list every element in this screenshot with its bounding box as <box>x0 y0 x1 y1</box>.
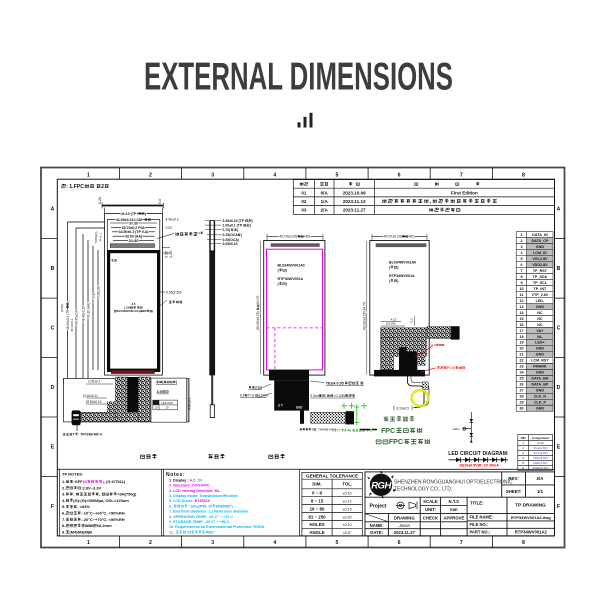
svg-text:PIN: PIN <box>521 436 526 440</box>
svg-text:REV:: REV: <box>508 476 519 481</box>
svg-text:5.00(2A): 5.00(2A) <box>96 286 100 298</box>
svg-text:5.08(2A): 5.08(2A) <box>94 231 98 243</box>
svg-text:16 ~ 80: 16 ~ 80 <box>310 506 325 511</box>
svg-text:PCM: PCM <box>447 366 455 370</box>
svg-text:GND: GND <box>536 305 545 309</box>
svg-text:mm: mm <box>450 507 458 512</box>
svg-text:VCC(2.8V): VCC(2.8V) <box>533 451 548 455</box>
svg-text:RGH: RGH <box>371 480 392 491</box>
svg-text:Project: Project <box>370 504 387 510</box>
svg-text:P=1.1: P=1.1 <box>99 233 103 241</box>
svg-text:19: 19 <box>519 341 523 345</box>
svg-text:01: 01 <box>301 190 307 195</box>
svg-text:19(20±0.5V)R: 2V 20mA: 19(20±0.5V)R: 2V 20mA <box>459 464 499 468</box>
svg-text:11: 11 <box>520 293 524 297</box>
svg-text:6.: 6. <box>169 504 172 508</box>
svg-text:COG: COG <box>431 343 437 347</box>
svg-text:2.05±0.15: 2.05±0.15 <box>223 242 238 246</box>
svg-text:02: 02 <box>301 199 307 204</box>
svg-text:TOL.: TOL. <box>342 482 352 487</box>
svg-text:F: F <box>51 504 54 510</box>
svg-text:10. Requirements on Environmen: 10. Requirements on Environmental Protec… <box>169 525 265 529</box>
svg-text:SHEET:: SHEET: <box>506 489 522 494</box>
svg-text::-10°C~+60°C, <90%RH: :-10°C~+60°C, <90%RH <box>81 511 125 516</box>
svg-text:DIM.: DIM. <box>312 482 321 487</box>
svg-text:45.10±0.3: 45.10±0.3 <box>70 318 74 332</box>
svg-text:RTP34WV001A2.dwg: RTP34WV001A2.dwg <box>511 515 551 520</box>
svg-text:TP DRAWING: TP DRAWING <box>515 502 546 508</box>
svg-text:,: , <box>99 492 100 497</box>
svg-text:TITLE:: TITLE: <box>470 501 484 506</box>
svg-text:N.T.S: N.T.S <box>449 499 460 504</box>
svg-text:(DR): (DR) <box>255 386 262 390</box>
svg-text:±0.2mm: ±0.2mm <box>97 523 112 528</box>
svg-text:T+G: T+G <box>248 394 255 398</box>
svg-text:10: 10 <box>519 287 523 291</box>
svg-text:8.B: 8.B <box>112 259 118 263</box>
svg-text:(83.80±0.25): (83.80±0.25) <box>256 311 260 330</box>
svg-text:UNIT:: UNIT: <box>425 507 437 512</box>
svg-text:9. STORAGE TEMP: -30 C° ~ +80: 9. STORAGE TEMP: -30 C° ~ +80 C <box>169 520 230 524</box>
svg-text:2: 2 <box>520 239 522 243</box>
svg-text:, (G:GT911): , (G:GT911) <box>104 479 126 484</box>
svg-text:FMARK: FMARK <box>533 365 547 369</box>
svg-text:26: 26 <box>519 383 523 387</box>
svg-text:E: E <box>557 445 561 451</box>
svg-text:A 4o: A 4o <box>344 429 351 433</box>
svg-text:GND: GND <box>536 347 545 351</box>
svg-text:9: 9 <box>520 281 522 285</box>
svg-text:16: 16 <box>519 323 523 327</box>
svg-text:D: D <box>51 385 55 391</box>
svg-text:(15.80): (15.80) <box>386 322 396 326</box>
svg-text:9.: 9. <box>62 529 65 534</box>
svg-text:: >84%: : >84% <box>77 504 90 509</box>
svg-text:4.15: 4.15 <box>391 317 397 321</box>
svg-text:1: 1 <box>87 173 90 179</box>
svg-text:Assignment: Assignment <box>532 436 549 440</box>
svg-text:GND: GND <box>536 389 545 393</box>
svg-text:(83.80±0.25) 84.70: (83.80±0.25) 84.70 <box>362 302 366 330</box>
svg-text:8. OPERATING TEMP: -20 C° ~ +7: 8. OPERATING TEMP: -20 C° ~ +70 C <box>169 515 233 519</box>
svg-text:FPC: FPC <box>389 439 403 446</box>
svg-text:15.50±0.15: 15.50±0.15 <box>86 400 102 404</box>
svg-text::: : <box>73 492 74 497</box>
svg-text:TECHNOLOGY CO., LTD.: TECHNOLOGY CO., LTD. <box>394 486 452 492</box>
svg-text:DATA_BP: DATA_BP <box>531 383 548 387</box>
svg-text:B: B <box>557 266 561 272</box>
svg-text:NAME:: NAME: <box>370 523 385 528</box>
svg-text:FPC: FPC <box>381 428 395 435</box>
svg-text:TP_SDA: TP_SDA <box>533 275 548 279</box>
svg-text:2: 2 <box>149 540 152 546</box>
svg-text:GENERAL TOLERANCE: GENERAL TOLERANCE <box>306 474 358 479</box>
svg-text::GFF: :GFF <box>73 479 83 484</box>
svg-text:2023.11.27: 2023.11.27 <box>343 208 366 213</box>
svg-text:1/A: 1/A <box>321 199 329 204</box>
svg-text:2/A: 2/A <box>537 476 545 481</box>
svg-text:LED(2.8V): LED(2.8V) <box>533 461 547 465</box>
svg-text:7.: 7. <box>62 517 65 522</box>
svg-text:: 1.FPC: : 1.FPC <box>66 184 84 190</box>
svg-text:DRAWING: DRAWING <box>394 515 415 520</box>
svg-text:11.: 11. <box>169 530 174 534</box>
svg-text:LED+: LED+ <box>453 427 461 431</box>
svg-text:HOLES: HOLES <box>309 522 324 527</box>
svg-text:8u": 8u" <box>209 530 215 534</box>
svg-text:BL034WV001A0 (: BL034WV001A0 ( <box>117 309 141 313</box>
svg-text:10: 10 <box>154 406 158 410</box>
svg-text:): ) <box>237 228 238 232</box>
svg-text:BL034WV001A0: BL034WV001A0 <box>389 261 416 265</box>
svg-text::2.8V~3.3V: :2.8V~3.3V <box>81 485 101 490</box>
svg-text:LED+: LED+ <box>535 341 545 345</box>
svg-text:LED CIRCUIT DIAGRAM:: LED CIRCUIT DIAGRAM: <box>448 451 509 457</box>
svg-text:VA+: VA+ <box>536 329 543 333</box>
svg-text:A: A <box>557 207 561 213</box>
svg-text:40.70±0.20(: 40.70±0.20( <box>279 235 298 239</box>
svg-text:44.45±0.2: 44.45±0.2 <box>74 311 78 325</box>
svg-text:VTP_2.8V: VTP_2.8V <box>531 293 548 297</box>
svg-text:5: 5 <box>520 257 522 261</box>
svg-text:30: 30 <box>519 407 523 411</box>
svg-text:±0.5°: ±0.5° <box>343 531 352 535</box>
svg-text:D: D <box>557 385 561 391</box>
svg-text:1.20: 1.20 <box>169 251 173 258</box>
svg-text:CLK_N: CLK_N <box>534 395 547 399</box>
svg-text:NC: NC <box>537 311 543 315</box>
svg-text:3.: 3. <box>62 492 65 497</box>
svg-text:BL034WV001A0: BL034WV001A0 <box>278 264 305 268</box>
svg-text:20: 20 <box>519 347 523 351</box>
svg-text:8: 8 <box>522 173 525 179</box>
svg-text:NC: NC <box>537 323 543 327</box>
svg-text:6.: 6. <box>62 511 65 516</box>
svg-text:C: C <box>51 326 55 332</box>
svg-text:VGL2.8V: VGL2.8V <box>532 257 548 261</box>
svg-text:±0.15: ±0.15 <box>343 507 352 511</box>
svg-text:GND: GND <box>536 371 545 375</box>
svg-text:0.02: 0.02 <box>166 226 173 230</box>
svg-text:2023.11.27: 2023.11.27 <box>394 530 416 535</box>
svg-text:0.1: 0.1 <box>196 231 201 235</box>
svg-text:17: 17 <box>519 329 523 333</box>
svg-text:1: 1 <box>520 233 522 237</box>
svg-text:HDI10±8: HDI10±8 <box>161 401 172 405</box>
svg-text:±0.20: ±0.20 <box>343 515 352 519</box>
svg-text:31.30: 31.30 <box>128 238 139 243</box>
svg-text:GND: GND <box>536 407 545 411</box>
svg-text:1.00±0.1 (TP: 1.00±0.1 (TP <box>223 224 243 228</box>
svg-text:): ) <box>250 224 251 228</box>
svg-text:VDD2.8V: VDD2.8V <box>532 263 548 267</box>
svg-text:DATE:: DATE: <box>370 530 383 535</box>
svg-text:4: 4 <box>273 173 276 179</box>
svg-text:25: 25 <box>519 377 523 381</box>
svg-text:PART NO.:: PART NO.: <box>470 530 491 535</box>
svg-text:): ) <box>252 219 253 223</box>
svg-text:SHENZHEN RONGGUANGHUI OPTOELEC: SHENZHEN RONGGUANGHUI OPTOELECTRONIC <box>394 479 513 485</box>
svg-text:RTP34WV001A: RTP34WV001A <box>389 274 415 278</box>
svg-text:1.: 1. <box>62 479 65 484</box>
svg-text:SCALE: SCALE <box>423 499 438 504</box>
svg-text:LCM_RST: LCM_RST <box>531 359 549 363</box>
svg-text:(3.40±0.2): (3.40±0.2) <box>83 394 98 398</box>
svg-text:=0.1MM: =0.1MM <box>333 394 346 398</box>
svg-text:2: 2 <box>101 184 104 190</box>
svg-text:3.5: 3.5 <box>131 302 135 306</box>
svg-text:TP NOTES:: TP NOTES: <box>62 472 83 477</box>
svg-text:84.70: 84.70 <box>256 296 260 304</box>
svg-text:13: 13 <box>519 305 523 309</box>
svg-text:3: 3 <box>211 540 214 546</box>
svg-text:2: 2 <box>149 173 152 179</box>
svg-text:18: 18 <box>519 335 523 339</box>
svg-text:EXTERNAL DIMENSIONS: EXTERNAL DIMENSIONS <box>144 56 453 99</box>
svg-text:4. Display mode: Transmissive/: 4. Display mode: Transmissive/Positive <box>169 494 238 498</box>
svg-text:8.90±0.3: 8.90±0.3 <box>188 397 192 410</box>
svg-text:2023.11.13: 2023.11.13 <box>343 199 366 204</box>
svg-text:2023.10.09: 2023.10.09 <box>343 190 366 195</box>
svg-text:7: 7 <box>460 173 463 179</box>
svg-text:0.25(OCA: 0.25(OCA <box>223 233 239 237</box>
svg-text:23: 23 <box>519 365 523 369</box>
svg-text:5.: 5. <box>62 504 65 509</box>
svg-text:): ) <box>176 380 177 384</box>
svg-text:HD): HD) <box>409 235 415 239</box>
svg-text:28: 28 <box>519 395 523 399</box>
svg-text:RTP34WV001A: RTP34WV001A <box>278 277 304 281</box>
svg-text:6: 6 <box>520 263 522 267</box>
svg-text:3.30±0.15 (TP: 3.30±0.15 (TP <box>223 219 245 223</box>
svg-text:03: 03 <box>301 208 307 213</box>
svg-text:4.: 4. <box>62 498 65 503</box>
svg-text:): ) <box>145 212 146 216</box>
svg-text:6: 6 <box>398 173 401 179</box>
svg-text:(0.80): (0.80) <box>60 304 64 312</box>
svg-text:First Edition: First Edition <box>451 190 478 195</box>
svg-text:2.05±0.1: 2.05±0.1 <box>88 380 101 384</box>
svg-text:GND: GND <box>537 441 545 445</box>
svg-text:Notes:: Notes: <box>166 472 185 478</box>
svg-text:DATA_IN: DATA_IN <box>532 233 548 237</box>
svg-text:1/1: 1/1 <box>537 489 544 494</box>
svg-text:2. Structure: COG+FPC: 2. Structure: COG+FPC <box>169 484 210 488</box>
svg-text:7: 7 <box>460 540 463 546</box>
svg-text:TP_RST: TP_RST <box>533 269 548 273</box>
svg-text:(G: (G <box>83 479 87 484</box>
svg-text:F: F <box>557 504 560 510</box>
svg-text:8: 8 <box>520 275 522 279</box>
svg-text:DATA_BN: DATA_BN <box>531 377 548 381</box>
svg-text:8 ~ 15: 8 ~ 15 <box>311 499 324 504</box>
svg-text:7: 7 <box>520 269 522 273</box>
svg-text:): ) <box>152 309 153 313</box>
svg-text:41.40±0.15: 41.40±0.15 <box>81 306 85 322</box>
svg-text:5: 5 <box>336 173 339 179</box>
svg-text:TP_INT: TP_INT <box>534 287 547 291</box>
svg-text:(G):(G)>500Mpa, ODL>125um: (G):(G)>500Mpa, ODL>125um <box>73 498 129 503</box>
svg-text:GO!: GO! <box>296 406 302 410</box>
svg-text:1: 1 <box>87 540 90 546</box>
svg-text:±0.10: ±0.10 <box>343 492 352 496</box>
svg-text:LCM_ID: LCM_ID <box>533 251 547 255</box>
svg-text:CLK_P: CLK_P <box>534 401 547 405</box>
svg-text:85/85/85°): 85/85/85°) <box>216 504 234 508</box>
svg-text:3.96: 3.96 <box>164 251 168 258</box>
svg-text:8.: 8. <box>62 523 65 528</box>
svg-text:(M4)M3(M)B: (M4)M3(M)B <box>69 529 92 534</box>
svg-text:41.10 (TP: 41.10 (TP <box>121 212 137 216</box>
svg-text:A: A <box>51 207 55 213</box>
svg-text:21: 21 <box>519 353 523 357</box>
svg-text:8.6: 8.6 <box>410 318 414 323</box>
svg-text:P=1.1: P=1.1 <box>91 293 95 302</box>
svg-text:VGL(2.8V): VGL(2.8V) <box>533 446 547 450</box>
svg-text:RTP34WV001A2: RTP34WV001A2 <box>515 530 548 535</box>
svg-text:5. LCD Driver: NT35310: 5. LCD Driver: NT35310 <box>169 499 210 503</box>
svg-text:±0.10: ±0.10 <box>343 523 352 527</box>
svg-text:4.90±0.2: 4.90±0.2 <box>166 218 179 222</box>
svg-text:NC: NC <box>537 317 543 321</box>
svg-text:CHECK: CHECK <box>423 515 439 520</box>
svg-text:TP_SCL: TP_SCL <box>533 281 548 285</box>
svg-text:1. Display : A.C. 5V: 1. Display : A.C. 5V <box>169 478 203 482</box>
svg-text:6: 6 <box>398 540 401 546</box>
svg-text:±0.12: ±0.12 <box>343 500 352 504</box>
svg-text:TESA 0.05: TESA 0.05 <box>326 381 344 385</box>
svg-text:GND: GND <box>536 245 545 249</box>
svg-text:>3H(750g): >3H(750g) <box>117 492 137 497</box>
svg-text:22: 22 <box>519 359 523 363</box>
svg-text:12: 12 <box>519 299 523 303</box>
svg-text:3.5: 3.5 <box>157 390 162 394</box>
svg-text:FILE NAME:: FILE NAME: <box>470 515 493 520</box>
svg-text:27: 27 <box>519 389 523 393</box>
svg-text:#2?7: #2?7 <box>333 429 341 433</box>
svg-text:B: B <box>51 266 55 272</box>
svg-text:: 12h±(P45,: : 12h±(P45, <box>188 504 207 508</box>
svg-text:6.10±0.5: 6.10±0.5 <box>397 407 410 411</box>
svg-text:): ) <box>241 233 242 237</box>
svg-text:5: 5 <box>336 540 339 546</box>
svg-text:APPROVE: APPROVE <box>443 515 464 520</box>
svg-text:15: 15 <box>519 317 523 321</box>
svg-text:0/A: 0/A <box>321 190 329 195</box>
svg-text:7. Electrical diameter: 1.1 Re: 7. Electrical diameter: 1.1 Reference di… <box>169 510 249 514</box>
svg-text:29: 29 <box>519 401 523 405</box>
svg-text:3: 3 <box>520 245 522 249</box>
svg-text:39.10 (AA): 39.10 (AA) <box>86 303 90 318</box>
svg-text:ANGLE: ANGLE <box>309 530 324 535</box>
svg-text:0.95(2.50): 0.95(2.50) <box>166 291 181 295</box>
svg-text:6.8: 6.8 <box>240 394 245 398</box>
svg-text:VDD(2.8V): VDD(2.8V) <box>533 456 548 460</box>
svg-text:HD): HD) <box>304 235 310 239</box>
svg-text:0.0: 0.0 <box>158 199 162 204</box>
svg-text:E: E <box>51 445 55 451</box>
svg-text:LED-: LED- <box>536 299 545 303</box>
svg-text:): ) <box>66 301 70 302</box>
svg-text:4: 4 <box>273 540 276 546</box>
svg-text:0 ~ 8: 0 ~ 8 <box>312 491 322 496</box>
svg-text:: TP#34B-MF-4: : TP#34B-MF-4 <box>78 433 102 437</box>
svg-text:0.70(: 0.70( <box>223 228 232 232</box>
svg-text:0.20: 0.20 <box>98 197 102 204</box>
svg-text:T: T <box>311 427 313 431</box>
svg-text::-20°C~+70°C, <90%RH: :-20°C~+70°C, <90%RH <box>81 517 125 522</box>
svg-text:81 ~ 250: 81 ~ 250 <box>308 514 326 519</box>
svg-text:3: 3 <box>211 173 214 179</box>
svg-text:FILE NO.:: FILE NO.: <box>470 522 489 527</box>
svg-text:40.70±0.20(: 40.70±0.20( <box>384 235 403 239</box>
svg-text:10: 10 <box>165 406 169 410</box>
svg-text:35.70±0.2 POL: 35.70±0.2 POL <box>122 226 147 230</box>
svg-text:2/A: 2/A <box>321 208 329 213</box>
svg-text:DATA_CP: DATA_CP <box>531 239 548 243</box>
svg-text:GND: GND <box>536 353 545 357</box>
svg-text:34.50±0.1 (TP V.A): 34.50±0.1 (TP V.A) <box>119 230 149 234</box>
svg-text:C: C <box>557 326 561 332</box>
svg-text:Jason: Jason <box>398 523 411 528</box>
svg-text:VA-: VA- <box>537 335 544 339</box>
svg-text:8: 8 <box>522 540 525 546</box>
svg-text:37.30: 37.30 <box>129 221 138 225</box>
svg-text:3. LCD viewing Direction: ML.: 3. LCD viewing Direction: ML. <box>169 489 221 493</box>
svg-text:2.: 2. <box>62 485 65 490</box>
svg-text:B0: B0 <box>143 309 147 313</box>
